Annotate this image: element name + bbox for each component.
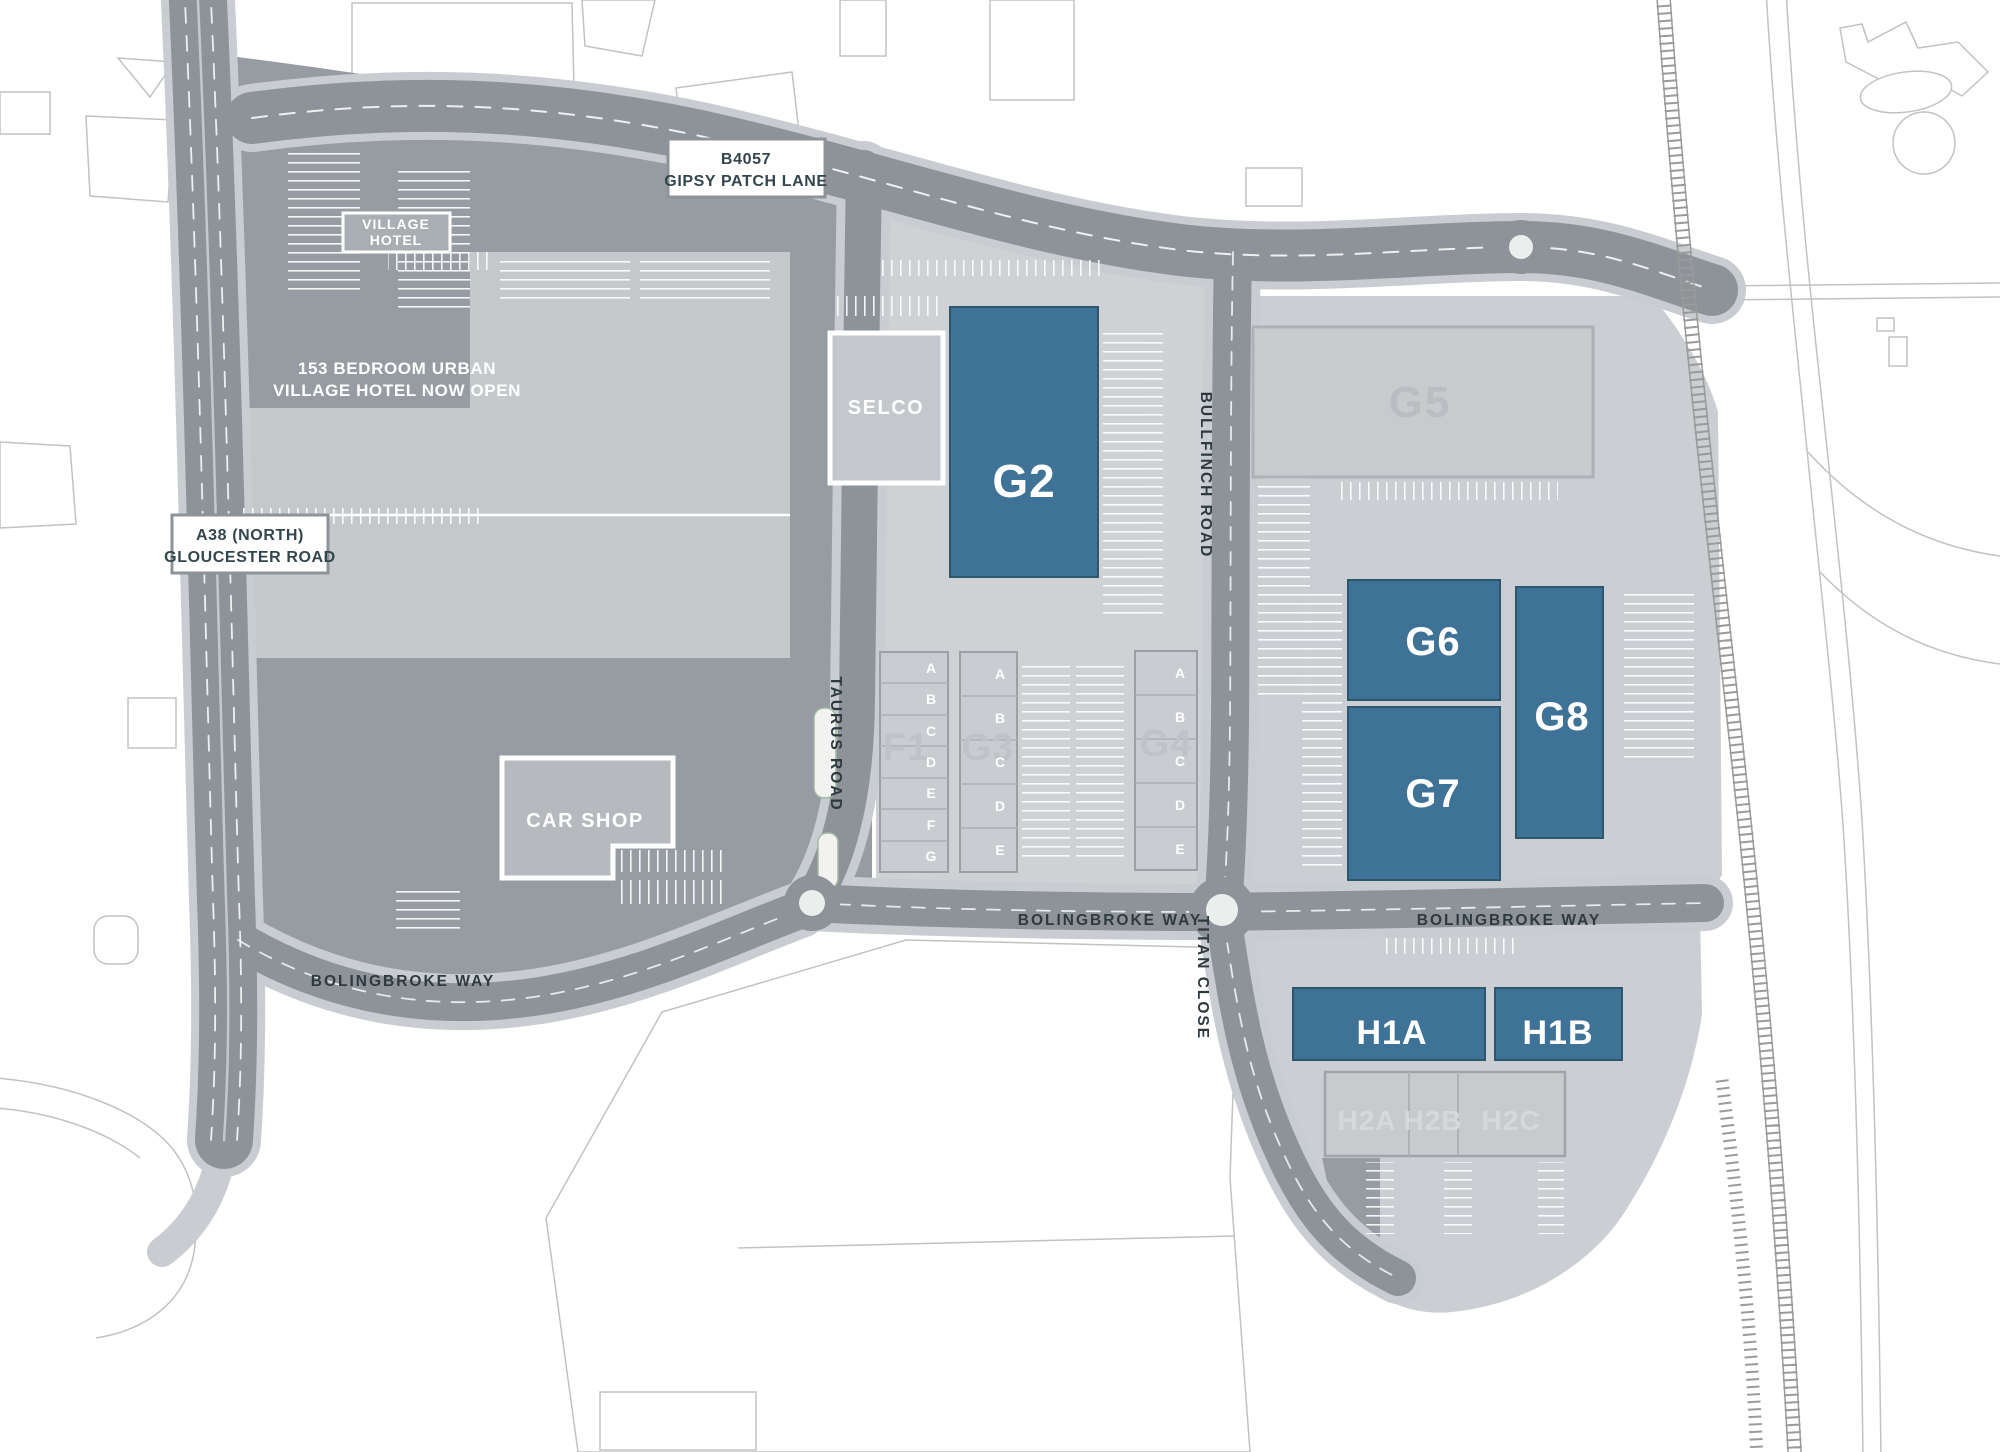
g2-footprint[interactable] (950, 307, 1098, 577)
h2a-label: H2A (1337, 1105, 1396, 1136)
g8-label: G8 (1534, 695, 1589, 739)
hotel-banner-line2: VILLAGE HOTEL NOW OPEN (273, 381, 521, 400)
g4-unit-b: B (1175, 709, 1185, 725)
gipsy-patch-sign: B4057 GIPSY PATCH LANE (664, 139, 827, 197)
a38-sign: A38 (NORTH) GLOUCESTER ROAD (164, 515, 336, 573)
f1-unit-d: D (926, 754, 936, 770)
g4-unit-c: C (1175, 753, 1185, 769)
h1b-label: H1B (1522, 1014, 1593, 1052)
g5-label: G5 (1389, 378, 1452, 427)
village-hotel-sign-line1: VILLAGE (362, 216, 430, 232)
f1-unit-c: C (926, 723, 936, 739)
building-h1b[interactable]: H1B (1495, 988, 1622, 1060)
building-g8[interactable]: G8 (1516, 587, 1603, 838)
site-plan-canvas: SELCO CAR SHOP G2 G5 G6 G7 G8 (0, 0, 2000, 1452)
g6-label: G6 (1405, 620, 1460, 664)
building-f1[interactable]: F1 A B C D E F G (880, 652, 948, 872)
f1-unit-e: E (926, 785, 935, 801)
h1a-label: H1A (1356, 1014, 1427, 1052)
f1-unit-g: G (926, 848, 937, 864)
g3-unit-c: C (995, 754, 1005, 770)
building-g5[interactable]: G5 (1253, 327, 1593, 477)
building-g3[interactable]: G3 A B C D E (960, 652, 1017, 872)
hotel-banner-line1: 153 BEDROOM URBAN (298, 359, 496, 378)
a38-sign-line1: A38 (NORTH) (196, 527, 304, 544)
titan-close-label: TITAN CLOSE (1194, 916, 1211, 1040)
taurus-road-label: TAURUS ROAD (827, 676, 844, 811)
g3-label: G3 (962, 727, 1015, 769)
bullfinch-road-label: BULLFINCH ROAD (1197, 392, 1214, 559)
g4-unit-d: D (1175, 797, 1185, 813)
railway-siding (1722, 1080, 1757, 1452)
building-g2[interactable]: G2 (950, 307, 1098, 577)
h2c-label: H2C (1481, 1105, 1540, 1136)
gipsy-patch-sign-line2: GIPSY PATCH LANE (664, 173, 827, 190)
h2b-label: H2B (1403, 1105, 1462, 1136)
f1-label: F1 (883, 727, 929, 769)
g2-label: G2 (992, 455, 1055, 507)
taurus-roundabout-island (799, 890, 825, 916)
bolingbroke-way-east-label: BOLINGBROKE WAY (1417, 912, 1601, 929)
g3-unit-a: A (995, 666, 1005, 682)
gipsy-patch-sign-line1: B4057 (721, 151, 771, 168)
g3-unit-b: B (995, 710, 1005, 726)
gipsy-patch-roundabout-island (1509, 235, 1533, 259)
f1-unit-a: A (926, 660, 936, 676)
site-plan-map: SELCO CAR SHOP G2 G5 G6 G7 G8 (0, 0, 2000, 1452)
building-g6[interactable]: G6 (1348, 580, 1500, 700)
f1-unit-b: B (926, 691, 936, 707)
selco-label: SELCO (848, 397, 924, 419)
a38-sign-line2: GLOUCESTER ROAD (164, 549, 336, 566)
building-h1a[interactable]: H1A (1293, 988, 1485, 1060)
g3-unit-d: D (995, 798, 1005, 814)
building-selco: SELCO (830, 333, 943, 483)
g4-unit-e: E (1175, 841, 1184, 857)
g4-unit-a: A (1175, 665, 1185, 681)
f1-unit-f: F (927, 817, 936, 833)
bolingbroke-way-west-label: BOLINGBROKE WAY (311, 973, 495, 990)
building-h2[interactable]: H2A H2B H2C (1325, 1072, 1565, 1156)
village-hotel-sign: VILLAGE HOTEL (343, 213, 450, 252)
car-shop-label: CAR SHOP (526, 810, 644, 832)
village-hotel-sign-line2: HOTEL (370, 232, 422, 248)
bolingbroke-way-mid-label: BOLINGBROKE WAY (1018, 912, 1202, 929)
building-g4[interactable]: G4 A B C D E (1135, 651, 1197, 870)
g7-label: G7 (1405, 772, 1460, 816)
g3-unit-e: E (995, 842, 1004, 858)
building-g7[interactable]: G7 (1348, 707, 1500, 880)
